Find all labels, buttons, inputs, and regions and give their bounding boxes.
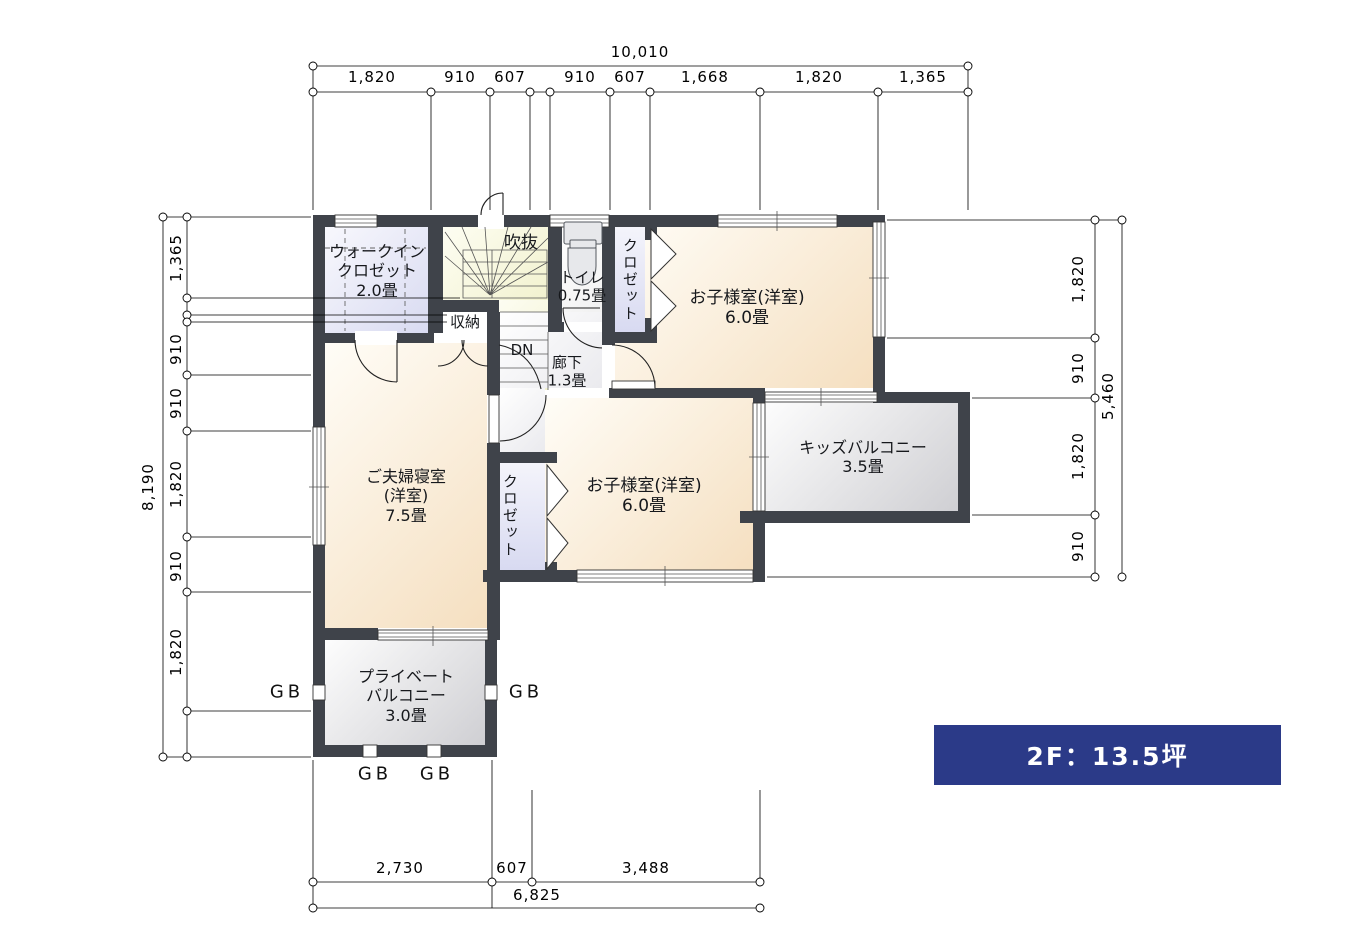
dim-left-seg-2: 910 xyxy=(167,333,185,365)
storage-label: 収納 xyxy=(447,314,483,332)
walk-in-closet-label: ウォークイン クロゼット 2.0畳 xyxy=(329,243,425,301)
closet-kids1-label: クロゼット xyxy=(620,238,638,323)
floor-plan-page: ウォークイン クロゼット 2.0畳 吹抜 トイレ 0.75畳 クロゼット お子様… xyxy=(0,0,1356,948)
master-bedroom-label: ご夫婦寝室 (洋室) 7.5畳 xyxy=(366,468,446,526)
dim-right-seg-4: 910 xyxy=(1069,530,1087,562)
dim-bottom-seg-2: 607 xyxy=(496,859,528,877)
gb-label-left: GB xyxy=(270,682,304,703)
dim-top-seg-4: 910 xyxy=(564,68,596,86)
dim-top-total: 10,010 xyxy=(611,43,670,61)
dim-left-seg-1: 1,365 xyxy=(167,234,185,282)
private-balcony-name-1: プライベート xyxy=(358,668,454,687)
dim-right-total: 5,460 xyxy=(1099,372,1117,420)
dim-left-total: 8,190 xyxy=(139,463,157,511)
floor-summary: 2F：13.5坪 xyxy=(934,725,1281,785)
private-balcony-label: プライベート バルコニー 3.0畳 xyxy=(358,668,454,726)
gb-label-bottom-1: GB xyxy=(358,764,392,785)
dim-bottom-seg-3: 3,488 xyxy=(622,859,670,877)
walk-in-closet-name-1: ウォークイン xyxy=(329,243,425,262)
dim-right-seg-2: 910 xyxy=(1069,352,1087,384)
dim-left-seg-5: 910 xyxy=(167,550,185,582)
master-bedroom-name-2: (洋室) xyxy=(366,487,446,506)
hallway-name: 廊下 xyxy=(548,354,587,372)
kids-room-1-name: お子様室(洋室) xyxy=(689,288,804,308)
walk-in-closet-name-2: クロゼット xyxy=(329,262,425,281)
kids-room-1-size: 6.0畳 xyxy=(689,308,804,328)
toilet-label: トイレ 0.75畳 xyxy=(558,269,606,304)
corridor-area xyxy=(499,388,545,452)
gb-label-right: GB xyxy=(509,682,543,703)
kids-room-2-size: 6.0畳 xyxy=(586,496,701,516)
dim-bottom-total: 6,825 xyxy=(513,886,561,904)
dim-bottom-seg-1: 2,730 xyxy=(376,859,424,877)
kids-room-2-label: お子様室(洋室) 6.0畳 xyxy=(586,476,701,516)
toilet-size: 0.75畳 xyxy=(558,287,606,305)
gb-label-bottom-2: GB xyxy=(420,764,454,785)
dim-top-seg-8: 1,365 xyxy=(899,68,947,86)
kids-room-1-label: お子様室(洋室) 6.0畳 xyxy=(689,288,804,328)
kids-balcony-name: キッズバルコニー xyxy=(799,439,927,458)
dim-top-seg-5: 607 xyxy=(614,68,646,86)
toilet-name: トイレ xyxy=(558,269,606,287)
stairs-down-label: DN xyxy=(511,342,534,360)
kids-balcony-label: キッズバルコニー 3.5畳 xyxy=(799,439,927,477)
dim-top-seg-3: 607 xyxy=(494,68,526,86)
void-label: 吹抜 xyxy=(504,233,538,253)
master-bedroom-size: 7.5畳 xyxy=(366,507,446,526)
dim-left-seg-3: 910 xyxy=(167,387,185,419)
dim-top-seg-1: 1,820 xyxy=(348,68,396,86)
dim-right-seg-1: 1,820 xyxy=(1069,255,1087,303)
dim-top-seg-2: 910 xyxy=(444,68,476,86)
private-balcony-size: 3.0畳 xyxy=(358,707,454,726)
walk-in-closet-size: 2.0畳 xyxy=(329,282,425,301)
kids-balcony-size: 3.5畳 xyxy=(799,458,927,477)
hallway-label: 廊下 1.3畳 xyxy=(548,354,587,389)
kids-room-2-name: お子様室(洋室) xyxy=(586,476,701,496)
private-balcony-name-2: バルコニー xyxy=(358,687,454,706)
closet-kids2-label: クロゼット xyxy=(500,474,518,559)
dim-right-seg-3: 1,820 xyxy=(1069,432,1087,480)
hallway-size: 1.3畳 xyxy=(548,372,587,390)
dim-top-seg-6: 1,668 xyxy=(681,68,729,86)
dim-left-seg-6: 1,820 xyxy=(167,628,185,676)
dim-left-seg-4: 1,820 xyxy=(167,460,185,508)
master-bedroom-name-1: ご夫婦寝室 xyxy=(366,468,446,487)
dim-top-seg-7: 1,820 xyxy=(795,68,843,86)
